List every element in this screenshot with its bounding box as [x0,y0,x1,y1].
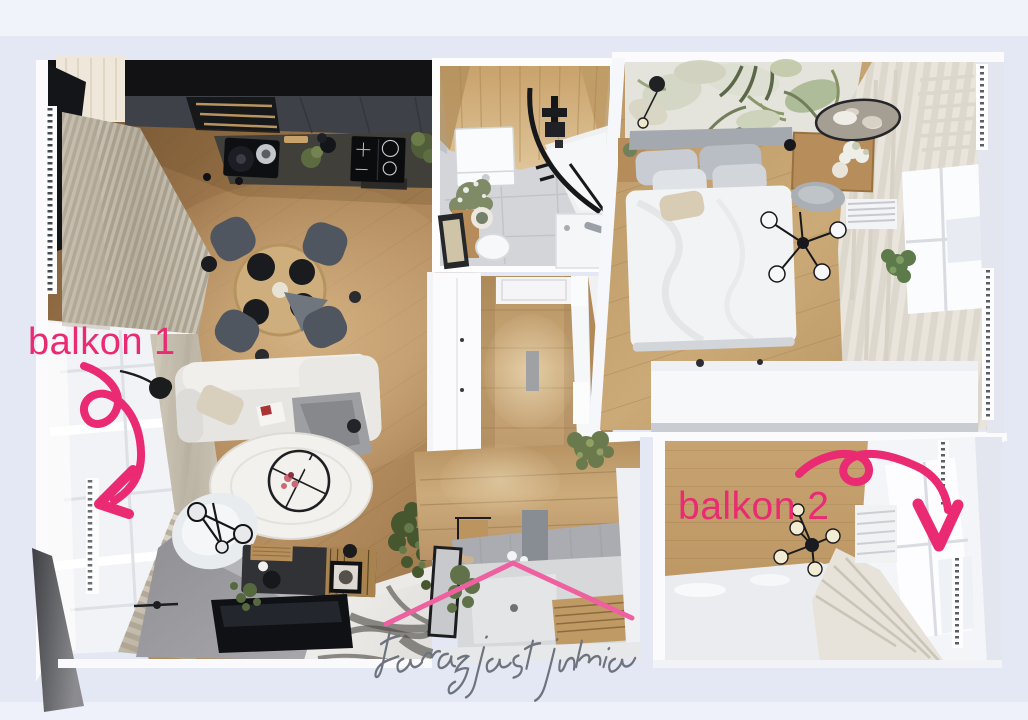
svg-text:balkon 2: balkon 2 [678,485,829,528]
svg-text:balkon 1: balkon 1 [28,321,176,363]
